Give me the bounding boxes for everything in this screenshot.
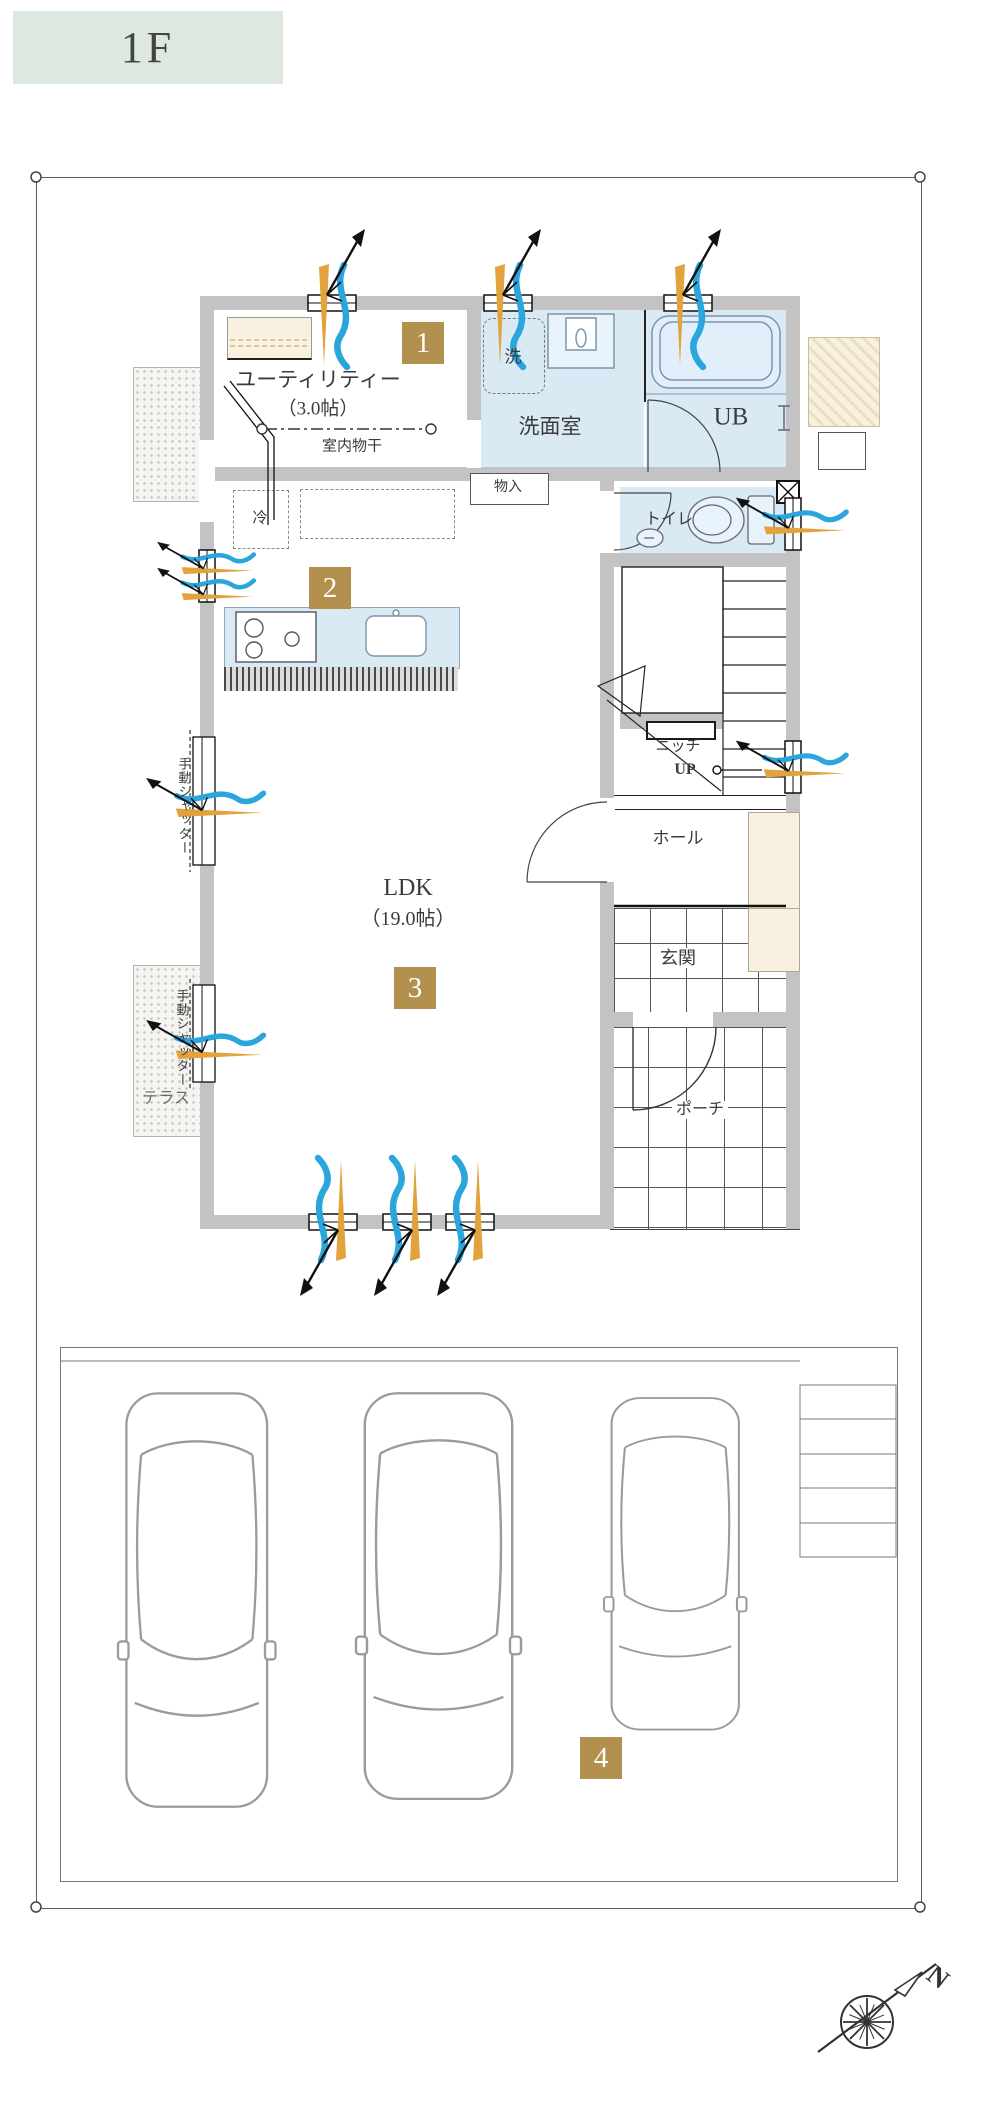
kitchen-counter-front xyxy=(224,667,458,691)
wall-left xyxy=(200,296,214,1229)
utility-closet xyxy=(227,317,312,360)
label-terrace: テラス xyxy=(142,1091,190,1107)
badge-2: 2 xyxy=(309,567,351,609)
label-porch: ポーチ xyxy=(672,1101,728,1119)
wall-right xyxy=(786,296,800,1229)
stairs-landing-edge xyxy=(614,795,786,810)
label-toilet: トイレ xyxy=(645,512,693,528)
badge-1: 1 xyxy=(402,322,444,364)
wall-porch-left xyxy=(600,1027,610,1229)
label-up: UP xyxy=(674,762,695,778)
wall-toilet-bottom xyxy=(600,553,800,567)
label-ldk-name: LDK xyxy=(383,876,432,900)
label-shutter-1: 手動シャッター xyxy=(178,757,191,855)
service-porch xyxy=(133,367,202,502)
wall-entrance-right xyxy=(713,1012,800,1027)
floor-plan-page: 1F xyxy=(0,0,1000,2116)
niche-shelf xyxy=(646,721,716,740)
label-utility-name: ユーティリティー xyxy=(235,370,400,391)
label-storage: 物入 xyxy=(494,481,522,495)
room-bath xyxy=(646,310,786,467)
floor-level-tag: 1F xyxy=(13,11,283,84)
badge-4: 4 xyxy=(580,1737,622,1779)
porch-tiles xyxy=(610,1027,800,1230)
wall-top xyxy=(200,296,800,310)
floor-level-label: 1F xyxy=(121,22,175,73)
outdoor-unit-box xyxy=(818,432,866,470)
label-indoor-drying: 室内物干 xyxy=(322,440,382,455)
wall-bottom xyxy=(200,1215,614,1229)
compass-icon: N xyxy=(818,1959,956,2052)
label-fridge: 冷 xyxy=(252,512,267,527)
label-niche: ニッチ xyxy=(655,740,700,755)
outdoor-equipment-pad xyxy=(808,337,880,427)
label-ldk-size: （19.0帖） xyxy=(361,909,456,929)
kitchen-counter xyxy=(224,607,460,669)
badge-3: 3 xyxy=(394,967,436,1009)
label-washroom: 洗面室 xyxy=(519,417,582,438)
wall-utility-washroom xyxy=(467,310,481,467)
parking-area xyxy=(60,1347,898,1882)
label-hall: ホール xyxy=(653,830,704,847)
label-utility-size: （3.0帖） xyxy=(278,400,359,419)
label-shutter-2: 手動シャッター xyxy=(176,989,189,1087)
wall-entrance-left xyxy=(600,1012,633,1027)
label-washer: 洗 xyxy=(505,349,522,366)
label-entrance: 玄関 xyxy=(656,948,700,968)
north-label: N xyxy=(921,1959,955,1995)
shoe-closet-lower xyxy=(748,908,800,972)
terrace-deck xyxy=(133,965,202,1137)
label-bath: UB xyxy=(714,405,749,430)
kitchen-cupboard xyxy=(300,489,455,539)
